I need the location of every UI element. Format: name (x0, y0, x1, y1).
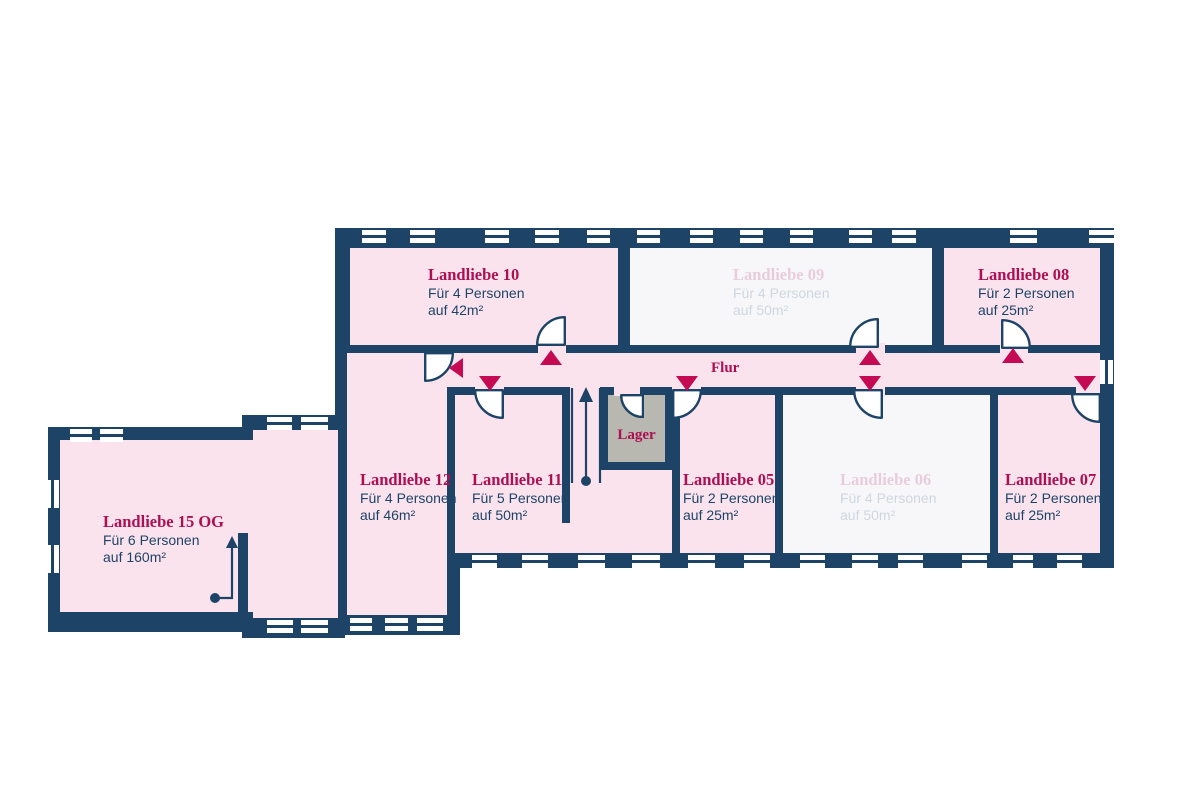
door-arc-icon (620, 394, 644, 418)
door-direction-triangle (540, 350, 562, 365)
window-icon (46, 545, 59, 573)
door-arc-icon (849, 318, 879, 348)
room-name: Landliebe 09 (733, 265, 830, 284)
door-arc-icon (672, 389, 702, 419)
room-label-landliebe-06: Landliebe 06 Für 4 Personen auf 50m² (840, 470, 937, 524)
window-icon (898, 555, 923, 568)
window-icon (535, 230, 559, 243)
door-direction-triangle (1074, 376, 1096, 391)
room-name: Landliebe 06 (840, 470, 937, 489)
door-arc-icon (1071, 393, 1101, 423)
window-icon (744, 555, 770, 568)
room-name: Landliebe 05 (683, 470, 780, 489)
window-icon (385, 618, 408, 631)
window-icon (267, 417, 292, 430)
window-icon (852, 555, 878, 568)
door-arc-icon (536, 316, 566, 346)
window-icon (849, 230, 872, 243)
window-icon (485, 230, 509, 243)
window-icon (267, 620, 293, 633)
room-capacity: Für 2 Personen (1005, 490, 1102, 507)
window-icon (417, 618, 443, 631)
window-icon (472, 555, 497, 568)
room-area: auf 50m² (472, 507, 569, 524)
window-icon (522, 555, 548, 568)
window-icon (46, 480, 59, 508)
lager-label: Lager (600, 427, 673, 443)
window-icon (1100, 360, 1113, 384)
window-icon (1013, 555, 1033, 568)
window-icon (410, 230, 435, 243)
door-arc-icon (474, 389, 504, 419)
window-icon (790, 230, 813, 243)
window-icon (637, 230, 660, 243)
window-icon (962, 555, 987, 568)
window-icon (578, 555, 605, 568)
room-capacity: Für 4 Personen (840, 490, 937, 507)
room-capacity: Für 2 Personen (683, 490, 780, 507)
room-area: auf 25m² (978, 302, 1075, 319)
room-area: auf 50m² (840, 507, 937, 524)
door-direction-triangle (479, 376, 501, 391)
room-label-landliebe-12: Landliebe 12 Für 4 Personen auf 46m² (360, 470, 457, 524)
window-icon (892, 230, 916, 243)
window-icon (100, 429, 123, 442)
floor-plan: Landliebe 10 Für 4 Personen auf 42m² Lan… (0, 0, 1200, 800)
window-icon (632, 555, 660, 568)
room-label-landliebe-05: Landliebe 05 Für 2 Personen auf 25m² (683, 470, 780, 524)
window-icon (1057, 555, 1082, 568)
room-capacity: Für 5 Personen (472, 490, 569, 507)
room-area: auf 46m² (360, 507, 457, 524)
room-name: Landliebe 07 (1005, 470, 1102, 489)
window-icon (1089, 230, 1114, 243)
room-area: auf 25m² (1005, 507, 1102, 524)
room-capacity: Für 4 Personen (360, 490, 457, 507)
room-name: Landliebe 12 (360, 470, 457, 489)
window-icon (70, 429, 92, 442)
window-icon (688, 555, 715, 568)
room-label-landliebe-10: Landliebe 10 Für 4 Personen auf 42m² (428, 265, 525, 319)
window-icon (350, 618, 372, 631)
room-capacity: Für 4 Personen (733, 285, 830, 302)
window-icon (301, 417, 328, 430)
room-name: Landliebe 10 (428, 265, 525, 284)
door-direction-triangle (859, 350, 881, 365)
room-name: Landliebe 11 (472, 470, 569, 489)
room-area: auf 42m² (428, 302, 525, 319)
window-icon (800, 555, 825, 568)
room-label-landliebe-07: Landliebe 07 Für 2 Personen auf 25m² (1005, 470, 1102, 524)
room-label-landliebe-09: Landliebe 09 Für 4 Personen auf 50m² (733, 265, 830, 319)
door-direction-triangle (1002, 348, 1024, 363)
corridor-flur (425, 353, 1100, 387)
window-icon (1010, 230, 1037, 243)
window-icon (301, 620, 328, 633)
window-icon (740, 230, 763, 243)
window-icon (587, 230, 610, 243)
room-label-landliebe-15-og: Landliebe 15 OG Für 6 Personen auf 160m² (103, 512, 224, 566)
room-capacity: Für 6 Personen (103, 532, 224, 549)
door-arc-icon (853, 389, 883, 419)
room-area: auf 50m² (733, 302, 830, 319)
room-name: Landliebe 15 OG (103, 512, 224, 531)
room-area: auf 160m² (103, 549, 224, 566)
room-label-landliebe-08: Landliebe 08 Für 2 Personen auf 25m² (978, 265, 1075, 319)
room-landliebe-15-og-annex (253, 430, 338, 618)
window-icon (362, 230, 386, 243)
door-arc-icon (1001, 319, 1031, 349)
door-direction-triangle (676, 376, 698, 391)
door-direction-triangle (859, 376, 881, 391)
window-icon (690, 230, 713, 243)
room-capacity: Für 2 Personen (978, 285, 1075, 302)
room-name: Landliebe 08 (978, 265, 1075, 284)
room-capacity: Für 4 Personen (428, 285, 525, 302)
corridor-label: Flur (711, 360, 739, 376)
room-label-landliebe-11: Landliebe 11 Für 5 Personen auf 50m² (472, 470, 569, 524)
door-direction-triangle (449, 358, 463, 378)
room-area: auf 25m² (683, 507, 780, 524)
